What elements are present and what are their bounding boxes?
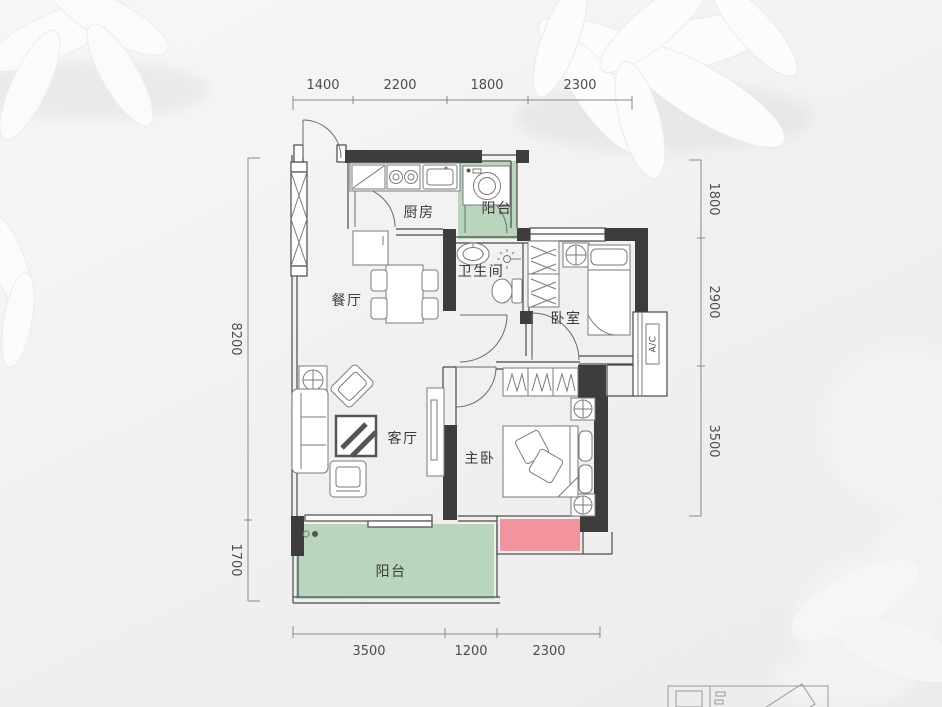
room-dining: 餐厅	[332, 265, 439, 323]
balcony-bottom-label: 阳台	[376, 564, 407, 580]
single-bed-icon	[588, 245, 630, 335]
tv-cabinet-icon	[427, 388, 444, 476]
entry-jamb-left	[294, 145, 303, 162]
dim-left-2: 1700	[228, 543, 243, 576]
stove-icon	[387, 165, 420, 189]
dim-top-1: 1400	[306, 78, 339, 93]
bay-window-fill	[500, 519, 580, 551]
balcony-bottom-floor	[296, 524, 494, 599]
entry-door-arc	[303, 120, 341, 158]
master-wardrobe-icon	[503, 368, 578, 396]
ac-label: A/C	[649, 336, 659, 353]
flower-decoration	[0, 0, 942, 707]
dim-right-3: 3500	[706, 424, 721, 457]
kitchen-sink-icon	[423, 165, 457, 189]
ac-platform: A/C	[633, 312, 667, 396]
dim-bottom-3: 2300	[532, 644, 565, 659]
entry-jamb-right	[337, 145, 346, 162]
wardrobe-icon	[528, 241, 559, 307]
dim-right-2: 2900	[706, 285, 721, 318]
coffee-table-icon	[336, 416, 376, 456]
dining-table-icon	[371, 265, 438, 323]
basin-icon	[457, 243, 489, 265]
dimension-right: 1800 2900 3500	[689, 160, 721, 516]
dim-left-1: 8200	[228, 322, 243, 355]
floorplan-page: 1400 2200 1800 2300 3500 1200 2300 8200 …	[0, 0, 942, 707]
bathroom-label: 卫生间	[458, 264, 505, 280]
dim-top-3: 1800	[470, 78, 503, 93]
armchair-icon	[329, 363, 374, 408]
dim-bottom-1: 3500	[352, 644, 385, 659]
dimension-bottom: 3500 1200 2300	[293, 626, 600, 659]
living-label: 客厅	[388, 430, 419, 447]
door-stop2-icon	[312, 531, 318, 537]
kitchen-label: 厨房	[404, 205, 435, 221]
floorplan-canvas: 1400 2200 1800 2300 3500 1200 2300 8200 …	[0, 0, 942, 707]
kitchen-door-arc	[355, 187, 395, 227]
room-master: 主卧	[465, 368, 596, 516]
dim-top-4: 2300	[563, 78, 596, 93]
ceiling-fan-icon	[563, 243, 589, 267]
toilet-icon	[492, 279, 522, 303]
balcony-top-label: 阳台	[482, 201, 513, 217]
dim-bottom-2: 1200	[454, 644, 487, 659]
dimension-left: 8200 1700	[228, 158, 260, 601]
washing-machine-icon	[463, 166, 510, 205]
dim-top-2: 2200	[383, 78, 416, 93]
room-bedroom: 卧室	[528, 241, 630, 335]
master-label: 主卧	[465, 451, 496, 467]
bedroom-label: 卧室	[551, 310, 582, 327]
bathroom-door-arc	[460, 315, 507, 362]
master-door-arc	[456, 367, 496, 407]
dim-right-1: 1800	[706, 182, 721, 215]
downlight-icon	[571, 398, 595, 420]
sofa-icon	[292, 389, 328, 473]
armchair2-icon	[330, 461, 366, 497]
wall-shaft-icon	[291, 162, 307, 276]
double-bed-icon	[503, 426, 592, 497]
fridge-icon	[353, 231, 388, 265]
room-bathroom: 卫生间	[457, 243, 522, 303]
dining-label: 餐厅	[332, 293, 363, 309]
room-living: 客厅	[292, 363, 444, 497]
